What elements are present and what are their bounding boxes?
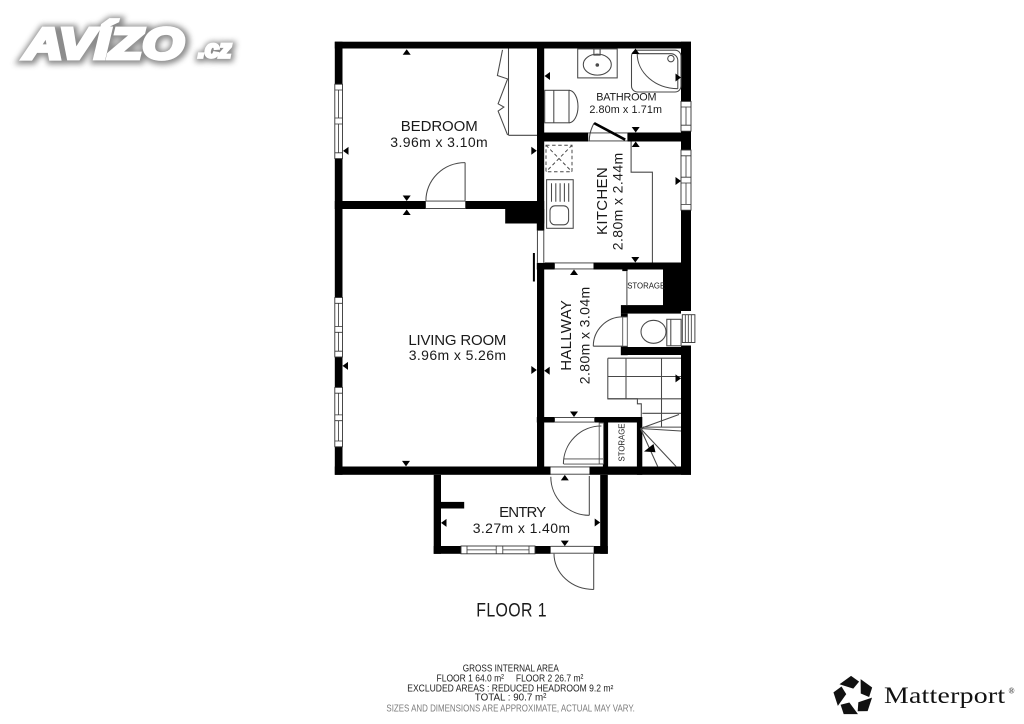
svg-text:BATHROOM: BATHROOM bbox=[596, 92, 656, 104]
svg-text:BEDROOM: BEDROOM bbox=[401, 118, 478, 135]
svg-text:®: ® bbox=[1009, 687, 1015, 696]
svg-text:3.96m x 5.26m: 3.96m x 5.26m bbox=[409, 347, 507, 363]
svg-text:3.96m x 3.10m: 3.96m x 3.10m bbox=[390, 134, 488, 150]
svg-text:2.80m x 2.44m: 2.80m x 2.44m bbox=[610, 152, 626, 250]
svg-text:FLOOR 1: FLOOR 1 bbox=[476, 599, 547, 621]
svg-text:HALLWAY: HALLWAY bbox=[558, 300, 575, 371]
svg-text:2.80m x 1.71m: 2.80m x 1.71m bbox=[589, 104, 662, 116]
svg-text:3.27m x 1.40m: 3.27m x 1.40m bbox=[473, 520, 571, 536]
svg-text:Matterport: Matterport bbox=[884, 682, 1005, 708]
svg-text:2.80m x 3.04m: 2.80m x 3.04m bbox=[576, 286, 592, 384]
svg-text:KITCHEN: KITCHEN bbox=[594, 167, 611, 235]
svg-text:STORAGE: STORAGE bbox=[617, 424, 626, 462]
svg-text:ENTRY: ENTRY bbox=[499, 504, 546, 521]
svg-text:AVÍZO: AVÍZO bbox=[23, 18, 184, 68]
svg-text:.cz: .cz bbox=[198, 36, 232, 64]
svg-text:STORAGE: STORAGE bbox=[627, 282, 665, 291]
svg-text:SIZES AND DIMENSIONS ARE APPRO: SIZES AND DIMENSIONS ARE APPROXIMATE, AC… bbox=[386, 703, 634, 714]
